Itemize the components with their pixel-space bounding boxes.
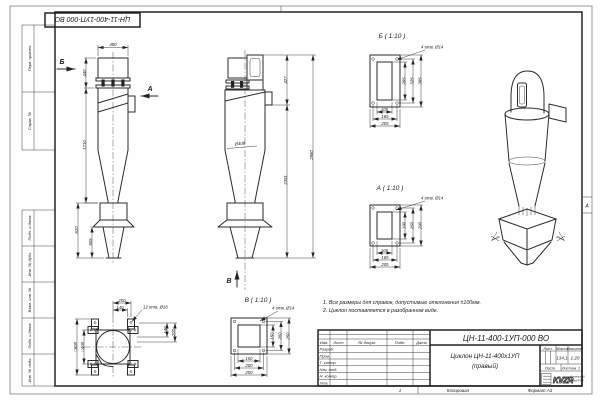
- tb-row-nkontr: Н. контр.: [320, 374, 338, 379]
- detail-b-dim-325: 325: [409, 77, 414, 85]
- detail-b-dim-205: 205: [380, 121, 389, 126]
- margin-inv-podl: Инв. № подл.: [27, 358, 32, 383]
- tb-col-doc: № докум.: [358, 340, 376, 345]
- front-dim-810: 810: [74, 226, 79, 234]
- tb-row-prov: Пров.: [320, 353, 331, 358]
- drawing-sheet: А Перв. примен. Справ. № Подп. и дата Ин…: [0, 0, 600, 400]
- detail-b-dim-365: 365: [417, 77, 422, 85]
- detail-v-dim-150v: 150: [269, 332, 274, 340]
- zone-marker: А: [584, 204, 589, 210]
- detail-v: В ( 1:10 ) 4 отв. Ø14 150 200 250 150 20…: [231, 297, 295, 377]
- tb-company-line1: Котельный: [571, 375, 586, 379]
- detail-a-dim-205: 205: [380, 262, 389, 267]
- margin-podp-data-2: Подп. и дата: [27, 323, 32, 349]
- plan-dim-r140: 140: [163, 326, 168, 334]
- tb-col-list: Лист: [332, 340, 344, 345]
- detail-b-dim-165: 165: [381, 114, 389, 119]
- detail-a: А ( 1:10 ) 4 отв. Ø14 190 250 290 105 16…: [370, 185, 444, 269]
- side-view: Ø408 427 2351 2960 В: [218, 50, 316, 290]
- note-line-1: 1. Все размеры для справок, допустимые о…: [323, 300, 481, 306]
- tb-company-line2: завод РЭП: [570, 379, 584, 383]
- top-stamp-text: ЦН-11-400-1УП-000 ВО: [54, 15, 130, 22]
- bottom-margin: 1 Копировал Формат А3: [399, 388, 553, 393]
- tb-mass-value: 134,1: [556, 356, 568, 361]
- tb-name-line2: (правый): [472, 362, 498, 370]
- tb-scale-label: Масштаб: [567, 347, 583, 351]
- top-stamp: ЦН-11-400-1УП-000 ВО: [45, 13, 140, 27]
- detail-b-holes-note: 4 отв. Ø14: [421, 45, 444, 50]
- side-dim-2960: 2960: [309, 150, 314, 161]
- tb-sheets-label: Листов: [561, 366, 577, 371]
- tb-col-data: Дата: [415, 340, 427, 345]
- front-view: 480 440 1710 810 505 Б А: [57, 42, 158, 264]
- detail-v-holes-note: 4 отв. Ø14: [272, 306, 295, 311]
- detail-a-dim-105: 105: [381, 248, 389, 253]
- side-dia-408: Ø408: [233, 140, 246, 146]
- detail-v-dim-150h: 150: [245, 356, 253, 361]
- tb-designation: ЦН-11-400-1УП-000 ВО: [463, 334, 549, 343]
- detail-a-dim-250: 250: [409, 221, 414, 230]
- tb-lit-label: Лит.: [542, 346, 552, 351]
- margin-inv-dubl: Инв. № дубл.: [27, 252, 32, 277]
- detail-b-dim-265: 265: [401, 77, 406, 86]
- plan-dim-200: 200: [117, 298, 126, 303]
- margin-perv-primen: Перв. примен.: [27, 45, 32, 72]
- tb-row-tkontr: Т. контр.: [320, 360, 337, 365]
- front-dim-1710: 1710: [82, 140, 87, 150]
- detail-v-dim-250v: 250: [285, 332, 290, 341]
- front-dim-505: 505: [88, 238, 93, 246]
- detail-a-holes-note: 4 отв. Ø14: [421, 196, 444, 201]
- side-arrow-v-label: В: [226, 278, 231, 285]
- front-arrow-a-label: А: [146, 86, 152, 93]
- plan-dim-140: 140: [116, 305, 124, 310]
- tb-col-podp: Подп.: [395, 340, 406, 345]
- company-logo: KVZR Котельный завод РЭП: [542, 374, 586, 386]
- detail-v-dim-200h: 200: [244, 363, 253, 368]
- side-dim-427: 427: [283, 76, 288, 84]
- plan-view: 200 140 12 отв. Ø18 140 200 □608 □408: [73, 298, 177, 378]
- detail-v-dim-250h: 250: [244, 370, 253, 375]
- tb-scale-value: 1:20: [571, 356, 580, 361]
- margin-podp-data-1: Подп. и дата: [27, 215, 32, 241]
- tb-col-izm: Изм.: [320, 340, 329, 345]
- tb-name-line1: Циклон ЦН-11-400х1УП: [451, 353, 520, 360]
- front-arrow-b-label: Б: [60, 59, 65, 66]
- plan-holes-note: 12 отв. Ø18: [143, 305, 168, 310]
- isometric-view: [491, 71, 566, 265]
- coil-icon: [543, 376, 551, 383]
- title-block: Изм. Лист № докум. Подп. Дата Разраб. Пр…: [318, 330, 585, 386]
- tb-sheet-label: Лист: [544, 366, 556, 371]
- note-line-2: 2. Циклон поставляется в разобранном вид…: [322, 308, 438, 314]
- footer-num: 1: [399, 388, 402, 393]
- front-dim-440: 440: [82, 69, 87, 77]
- footer-kopiroval: Копировал: [447, 388, 470, 393]
- front-dim-480: 480: [109, 42, 117, 47]
- detail-a-dim-290: 290: [417, 221, 422, 230]
- detail-b-dim-105: 105: [381, 107, 389, 112]
- tb-row-nachotd: Нач. отд.: [320, 367, 338, 372]
- footer-format: Формат А3: [528, 388, 553, 393]
- side-dim-2351: 2351: [283, 175, 288, 186]
- tb-sheets-value: 1: [578, 366, 580, 371]
- detail-a-title: А ( 1:10 ): [376, 185, 404, 192]
- plan-dim-sq608: □608: [73, 342, 78, 352]
- left-margin-graphs: Перв. примен. Справ. № Подп. и дата Инв.…: [22, 25, 55, 386]
- detail-v-dim-200v: 200: [277, 332, 282, 341]
- plan-dim-sq408: □408: [80, 342, 85, 352]
- margin-vzam-inv: Взам. инв. №: [27, 287, 32, 312]
- technical-notes: 1. Все размеры для справок, допустимые о…: [322, 300, 481, 314]
- margin-sprav-no: Справ. №: [27, 111, 32, 130]
- detail-a-dim-190: 190: [401, 221, 406, 229]
- detail-a-dim-165: 165: [381, 255, 389, 260]
- tb-row-utv: Утв.: [320, 380, 329, 385]
- detail-b: Б ( 1:10 ) 4 отв. Ø14 265 325 365 105 16…: [370, 33, 444, 128]
- detail-b-title: Б ( 1:10 ): [379, 33, 406, 40]
- detail-v-title: В ( 1:10 ): [245, 297, 272, 304]
- tb-row-razrab: Разраб.: [320, 347, 334, 352]
- plan-dim-r200: 200: [171, 328, 176, 337]
